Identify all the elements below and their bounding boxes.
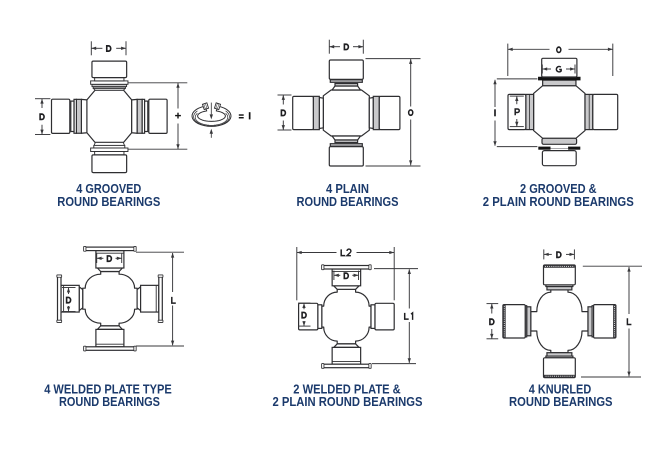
svg-text:ROUND BEARINGS: ROUND BEARINGS [59, 394, 160, 409]
svg-text:ROUND BEARINGS: ROUND BEARINGS [57, 194, 160, 209]
svg-text:ROUND BEARINGS: ROUND BEARINGS [509, 394, 613, 409]
svg-text:ROUND BEARINGS: ROUND BEARINGS [297, 194, 399, 209]
svg-text:2 PLAIN ROUND BEARINGS: 2 PLAIN ROUND BEARINGS [273, 394, 423, 409]
svg-text:2 PLAIN ROUND BEARINGS: 2 PLAIN ROUND BEARINGS [483, 194, 634, 209]
